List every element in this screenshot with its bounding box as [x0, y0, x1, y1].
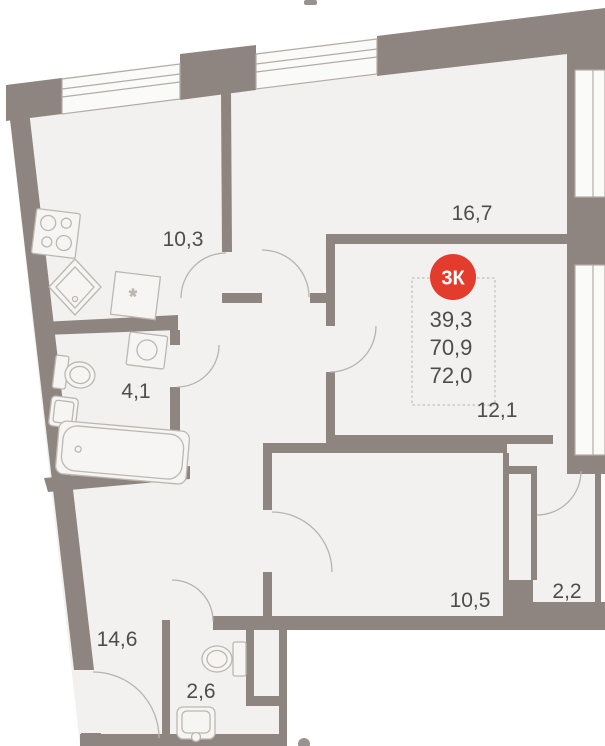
wall-wc-duct-horizontal: [246, 696, 287, 706]
window-storage-strip: [601, 474, 605, 602]
wall-storage-left: [531, 474, 537, 580]
legend-area-total: 72,0: [430, 363, 473, 388]
room-label-wc: 2,6: [186, 680, 215, 703]
wall-hall-stub: [222, 293, 262, 303]
room-label-bedroom2: 10,5: [450, 589, 491, 612]
stove-icon: [31, 208, 80, 258]
crop-mark-top: [304, 0, 317, 5]
room-label-kitchen: 10,3: [163, 228, 204, 251]
wall-right-interior-line: [567, 52, 575, 455]
wall-storage-top-left: [509, 466, 537, 474]
wall-kitchen-right: [221, 93, 232, 252]
floor-plan-page: * 3К: [0, 0, 605, 746]
floor-plan-canvas: * 3К: [0, 0, 605, 746]
wall-bedroom2-top: [263, 443, 507, 453]
room-label-bedroom1: 12,1: [477, 399, 518, 422]
wall-storage-top-right: [567, 453, 605, 474]
wall-bedroom1-left-lower: [326, 372, 335, 437]
wall-wc-right: [279, 630, 287, 746]
wall-bottom-exterior: [213, 616, 533, 630]
wall-bedroom1-left-upper: [326, 244, 335, 326]
wall-living-bedroom1: [326, 234, 567, 244]
wall-bedroom2-left-upper: [263, 453, 272, 510]
wall-bottom-right-exterior: [533, 602, 605, 630]
wall-bedroom1-bottom: [326, 435, 553, 444]
wall-bathroom-right-upper: [170, 330, 180, 345]
washing-machine-icon: [126, 332, 168, 369]
bathtub-icon: [55, 420, 190, 484]
room-label-hallway: 14,6: [97, 628, 138, 651]
wall-hall-post: [310, 293, 326, 303]
window-bedroom1-right: [575, 265, 605, 455]
wall-wc-duct-vertical: [246, 630, 254, 702]
wall-storage-right: [595, 474, 601, 602]
wc-sink-icon: [177, 707, 215, 742]
wall-wc-left: [162, 620, 170, 746]
unit-type-badge-label: 3К: [441, 268, 465, 290]
legend-area-living: 39,3: [430, 307, 473, 332]
wall-chunk-bedroom2-right: [503, 580, 533, 630]
room-label-storage: 2,2: [552, 580, 581, 603]
wall-bedroom2-right-thin: [503, 453, 509, 580]
wall-right-mid-pier: [575, 197, 605, 265]
wall-right-top-pier: [567, 44, 605, 72]
room-label-living: 16,7: [452, 202, 493, 225]
wall-bedroom2-left-lower: [263, 572, 272, 618]
legend-area-usable: 70,9: [430, 335, 473, 360]
counter-star-symbol: *: [129, 286, 137, 308]
window-living-right: [575, 70, 605, 197]
crop-mark-bottom: [298, 738, 310, 746]
room-label-bathroom: 4,1: [121, 380, 150, 403]
